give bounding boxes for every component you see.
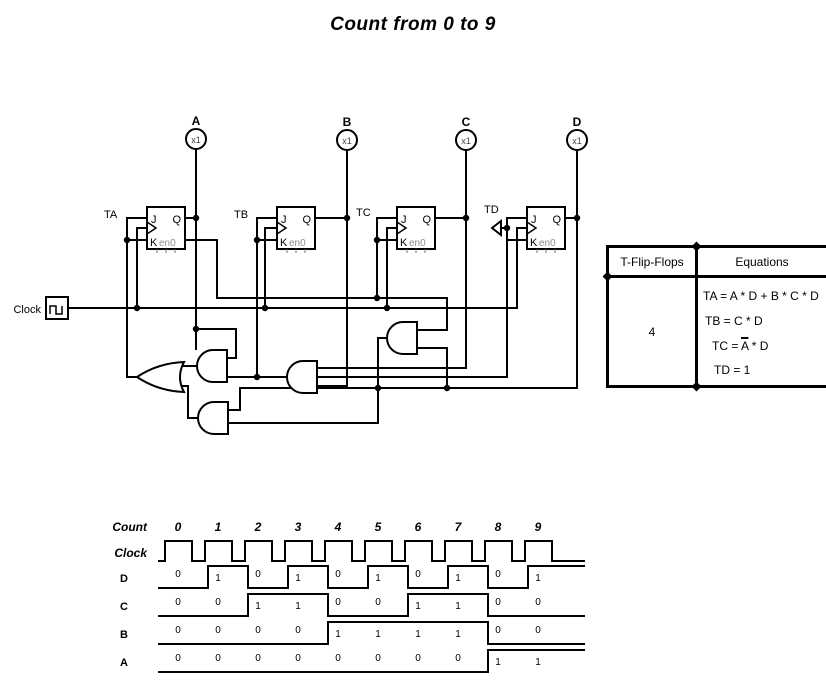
pin-j: J (401, 214, 407, 226)
clock-source-label: Clock (13, 304, 41, 316)
signal-value: 1 (415, 601, 421, 612)
junction-dot (193, 326, 199, 332)
junction-dot (193, 215, 199, 221)
signal-value: 0 (375, 653, 381, 664)
junction-dot (374, 295, 380, 301)
junction-dot (574, 215, 580, 221)
signal-label-C: C (120, 601, 128, 613)
count-value: 4 (334, 520, 342, 534)
pin-en: en0 (409, 238, 426, 249)
count-value: 2 (254, 520, 262, 534)
pin-q: Q (172, 214, 181, 226)
count-value: 3 (295, 520, 302, 534)
signal-value: 0 (175, 625, 181, 636)
junction-dot (344, 215, 350, 221)
pin-j: J (531, 214, 537, 226)
signal-value: 0 (415, 569, 421, 580)
signal-value: 0 (495, 625, 501, 636)
probe-signal-letter: C (462, 115, 471, 129)
probe-signal-letter: D (573, 115, 582, 129)
flipflop-tc: J Q K en0 TC (356, 207, 435, 253)
flipflop-ta: J Q K en0 TA (104, 207, 185, 253)
timing-diagram: CountClock0123456789D0101010101C00110011… (112, 520, 585, 672)
count-value: 8 (495, 520, 502, 534)
probe-part-label: x1 (572, 136, 582, 146)
probe-part-label: x1 (342, 136, 352, 146)
signal-value: 1 (455, 573, 461, 584)
signal-value: 0 (255, 569, 261, 580)
signal-value: 0 (415, 653, 421, 664)
screenshot-root: Count from 0 to 9 (0, 0, 826, 689)
junction-dot (463, 215, 469, 221)
signal-value: 1 (255, 601, 261, 612)
pin-k: K (530, 237, 538, 249)
pin-q: Q (552, 214, 561, 226)
signal-value: 0 (255, 625, 261, 636)
signal-value: 1 (335, 629, 341, 640)
flipflop-label: TB (234, 209, 248, 221)
pin-q: Q (302, 214, 311, 226)
probe-signal-letter: A (192, 114, 201, 128)
signal-value: 0 (215, 653, 221, 664)
junction-dot (384, 305, 390, 311)
timing-count-label: Count (112, 520, 148, 534)
pin-en: en0 (289, 238, 306, 249)
signal-value: 1 (495, 657, 501, 668)
wire-q-d (228, 150, 577, 410)
count-value: 9 (535, 520, 542, 534)
junction-dots (124, 215, 580, 391)
circuit-canvas: Clock J Q K en0 TA J Q K en0 TB J (0, 0, 826, 689)
signal-value: 1 (535, 657, 541, 668)
and-gate-3 (198, 402, 228, 434)
signal-value: 0 (335, 597, 341, 608)
pin-j: J (151, 214, 157, 226)
junction-dot (124, 237, 130, 243)
clock-waveform (158, 541, 585, 561)
signal-value: 0 (455, 653, 461, 664)
signal-waveform-B (158, 622, 585, 644)
signal-value: 0 (175, 653, 181, 664)
signal-value: 1 (415, 629, 421, 640)
flipflop-label: TA (104, 209, 118, 221)
signal-value: 0 (215, 597, 221, 608)
signal-value: 0 (535, 597, 541, 608)
signal-value: 0 (295, 653, 301, 664)
constant-input-terminal (492, 221, 501, 235)
pin-en: en0 (159, 238, 176, 249)
junction-dot (262, 305, 268, 311)
junction-dot (444, 385, 450, 391)
junction-dot (375, 385, 381, 391)
signal-waveform-C (158, 594, 585, 616)
signal-value: 1 (535, 573, 541, 584)
probe-part-label: x1 (191, 135, 201, 145)
signal-value: 0 (215, 625, 221, 636)
output-probe-b: x1 B (337, 115, 357, 150)
pin-k: K (280, 237, 288, 249)
signal-waveform-D (158, 566, 585, 588)
signal-value: 0 (495, 597, 501, 608)
count-value: 7 (455, 520, 463, 534)
signal-value: 0 (335, 569, 341, 580)
junction-dot (374, 237, 380, 243)
signal-value: 1 (295, 601, 301, 612)
and-gate-1 (197, 350, 227, 382)
pin-en: en0 (539, 238, 556, 249)
flipflop-tb: J Q K en0 TB (234, 207, 315, 253)
junction-dot (254, 237, 260, 243)
flipflop-label: TD (484, 204, 499, 216)
junction-dot (254, 374, 260, 380)
signal-value: 1 (215, 573, 221, 584)
output-probe-c: x1 C (456, 115, 476, 150)
signal-waveform-A (158, 650, 585, 672)
signal-value: 0 (255, 653, 261, 664)
signal-value: 0 (175, 597, 181, 608)
flipflop-label: TC (356, 207, 371, 219)
junction-dot (504, 225, 510, 231)
timing-clock-label: Clock (114, 546, 148, 560)
signal-value: 0 (375, 597, 381, 608)
signal-label-A: A (120, 657, 128, 669)
wire-mid-bus (185, 240, 447, 330)
junction-dot (134, 305, 140, 311)
signal-value: 0 (295, 625, 301, 636)
wire-q-b (315, 150, 347, 386)
pin-k: K (150, 237, 158, 249)
count-value: 1 (215, 520, 222, 534)
or-gate (137, 362, 184, 392)
signal-value: 1 (455, 601, 461, 612)
signal-value: 0 (335, 653, 341, 664)
output-probe-a: x1 A (186, 114, 206, 149)
pin-j: J (281, 214, 287, 226)
signal-value: 0 (495, 569, 501, 580)
and-gate-2 (287, 361, 317, 393)
wire-q-a (185, 149, 236, 358)
pin-q: Q (422, 214, 431, 226)
probe-part-label: x1 (461, 136, 471, 146)
signal-label-D: D (120, 573, 128, 585)
count-value: 6 (415, 520, 422, 534)
probe-signal-letter: B (343, 115, 352, 129)
signal-value: 1 (375, 573, 381, 584)
signal-value: 1 (455, 629, 461, 640)
signal-value: 0 (535, 625, 541, 636)
signal-value: 1 (295, 573, 301, 584)
pin-k: K (400, 237, 408, 249)
output-probe-d: x1 D (567, 115, 587, 150)
signal-label-B: B (120, 629, 128, 641)
clock-source: Clock (13, 297, 68, 319)
count-value: 0 (175, 520, 182, 534)
signal-value: 0 (175, 569, 181, 580)
and-gate-4 (387, 322, 417, 354)
count-value: 5 (375, 520, 382, 534)
signal-value: 1 (375, 629, 381, 640)
